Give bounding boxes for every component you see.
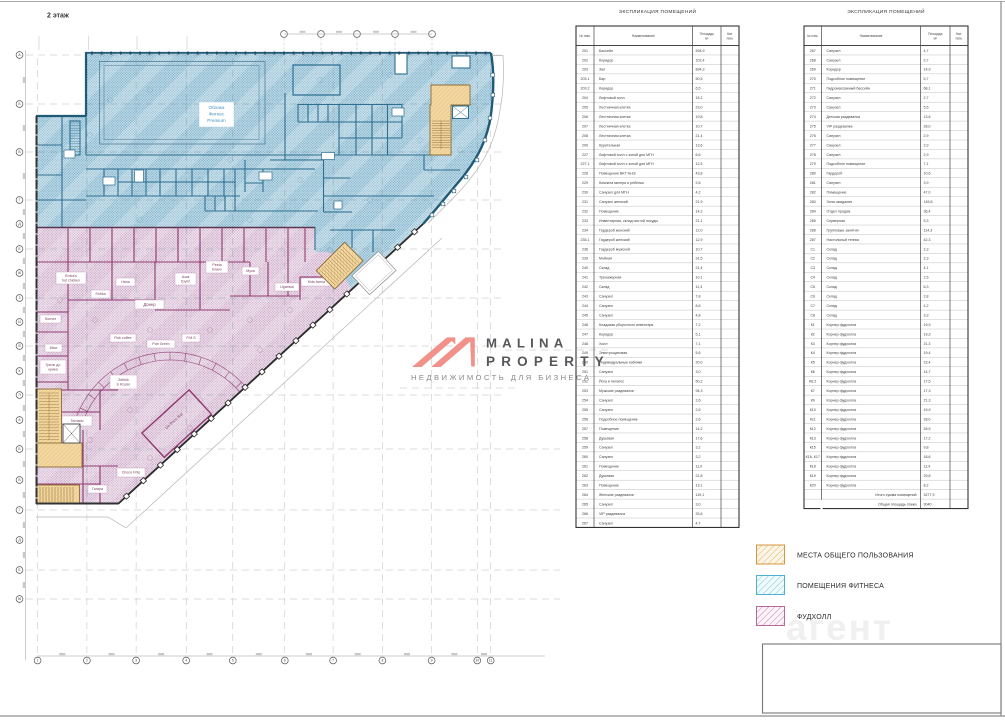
svg-text:3040: 3040 bbox=[924, 502, 932, 506]
svg-text:50,5: 50,5 bbox=[696, 77, 703, 81]
svg-text:К9: К9 bbox=[811, 398, 815, 402]
svg-text:Курительная: Курительная bbox=[599, 143, 620, 147]
svg-text:Корнер фудхолла: Корнер фудхолла bbox=[827, 380, 857, 384]
svg-text:Склад: Склад bbox=[827, 295, 838, 299]
svg-text:К2: К2 bbox=[811, 332, 815, 336]
svg-text:234: 234 bbox=[582, 228, 588, 232]
svg-text:276: 276 bbox=[810, 134, 816, 138]
svg-text:18,6: 18,6 bbox=[924, 455, 931, 459]
svg-text:13,1: 13,1 bbox=[696, 484, 703, 488]
svg-text:К18: К18 bbox=[810, 465, 816, 469]
svg-text:Общая площадь этажа: Общая площадь этажа bbox=[878, 502, 917, 506]
svg-text:№ пом.: № пом. bbox=[807, 34, 818, 38]
svg-text:271: 271 bbox=[810, 87, 816, 91]
svg-text:5: 5 bbox=[232, 659, 234, 663]
svg-text:Санузел: Санузел bbox=[599, 455, 613, 459]
svg-text:Корнер фудхолла: Корнер фудхолла bbox=[827, 427, 857, 431]
svg-text:К6.2: К6.2 bbox=[809, 380, 816, 384]
svg-text:Подсобное помещение: Подсобное помещение bbox=[827, 77, 866, 81]
svg-text:Кат.: Кат. bbox=[727, 32, 733, 36]
svg-text:Санузел: Санузел bbox=[599, 370, 613, 374]
svg-text:3277,9: 3277,9 bbox=[924, 493, 935, 497]
svg-text:Корнер фудхолла: Корнер фудхолла bbox=[827, 436, 857, 440]
svg-text:267: 267 bbox=[582, 521, 588, 525]
svg-text:Облака: Облака bbox=[209, 105, 225, 110]
svg-text:Kids Arena: Kids Arena bbox=[308, 280, 325, 284]
svg-text:Площадь: Площадь bbox=[928, 32, 943, 36]
svg-text:229: 229 bbox=[582, 181, 588, 185]
svg-text:235.1: 235.1 bbox=[581, 238, 590, 242]
svg-text:пом.: пом. bbox=[727, 37, 734, 41]
svg-text:227.1: 227.1 bbox=[581, 162, 590, 166]
svg-text:Лифтовой холл с зоной для МГН: Лифтовой холл с зоной для МГН bbox=[599, 153, 654, 157]
svg-text:5,7: 5,7 bbox=[924, 77, 929, 81]
svg-text:Санузел: Санузел bbox=[827, 153, 841, 157]
svg-text:17,3: 17,3 bbox=[924, 389, 931, 393]
svg-text:Гардероб женский: Гардероб женский bbox=[599, 238, 630, 242]
svg-text:К7: К7 bbox=[811, 389, 815, 393]
svg-text:Корнер фудхолла: Корнер фудхолла bbox=[827, 332, 857, 336]
svg-text:Коридор: Коридор bbox=[827, 68, 841, 72]
svg-text:МЕСТА ОБЩЕГО ПОЛЬЗОВАНИЯ: МЕСТА ОБЩЕГО ПОЛЬЗОВАНИЯ bbox=[797, 553, 914, 560]
svg-text:47,0: 47,0 bbox=[924, 191, 931, 195]
svg-text:202: 202 bbox=[582, 58, 588, 62]
svg-text:282: 282 bbox=[810, 191, 816, 195]
svg-text:Ugarista: Ugarista bbox=[280, 285, 293, 289]
svg-text:21,8: 21,8 bbox=[696, 474, 703, 478]
svg-text:242: 242 bbox=[582, 285, 588, 289]
svg-text:НЕДВИЖИМОСТЬ ДЛЯ БИЗНЕСА: НЕДВИЖИМОСТЬ ДЛЯ БИЗНЕСА bbox=[411, 373, 591, 382]
svg-text:256: 256 bbox=[582, 417, 588, 421]
svg-text:Лестничная клетка: Лестничная клетка bbox=[599, 134, 630, 138]
svg-text:36,4: 36,4 bbox=[924, 209, 931, 213]
svg-text:Помещение: Помещение bbox=[599, 484, 619, 488]
svg-text:К3: К3 bbox=[811, 342, 815, 346]
svg-text:Помещение: Помещение bbox=[599, 209, 619, 213]
svg-text:Комната матери и ребенка: Комната матери и ребенка bbox=[599, 181, 644, 185]
svg-text:Йога и пилатес: Йога и пилатес bbox=[599, 380, 624, 384]
svg-text:Корнер фудхолла: Корнер фудхолла bbox=[827, 465, 857, 469]
svg-text:6,3: 6,3 bbox=[924, 285, 929, 289]
svg-text:2,9: 2,9 bbox=[924, 143, 929, 147]
svg-text:7,8: 7,8 bbox=[696, 295, 701, 299]
svg-text:1: 1 bbox=[37, 659, 39, 663]
svg-text:Корнер фудхолла: Корнер фудхолла bbox=[827, 342, 857, 346]
svg-text:Коридор: Коридор bbox=[599, 87, 613, 91]
svg-text:Холл: Холл bbox=[599, 342, 607, 346]
svg-text:19,3: 19,3 bbox=[924, 332, 931, 336]
svg-text:Санузел: Санузел bbox=[827, 58, 841, 62]
svg-text:2,6: 2,6 bbox=[696, 408, 701, 412]
svg-text:Склад: Склад bbox=[827, 257, 838, 261]
svg-text:Г: Г bbox=[19, 508, 21, 512]
svg-text:Лестничная клетка: Лестничная клетка bbox=[599, 106, 630, 110]
svg-text:278: 278 bbox=[810, 153, 816, 157]
svg-text:Корнер фудхолла: Корнер фудхолла bbox=[827, 446, 857, 450]
svg-text:28,0: 28,0 bbox=[924, 417, 931, 421]
svg-text:К13: К13 bbox=[810, 436, 816, 440]
svg-text:Бар: Бар bbox=[599, 77, 605, 81]
svg-text:260: 260 bbox=[582, 455, 588, 459]
svg-text:14,2: 14,2 bbox=[696, 427, 703, 431]
svg-text:280: 280 bbox=[810, 172, 816, 176]
svg-text:17,5: 17,5 bbox=[924, 380, 931, 384]
svg-text:Л: Л bbox=[18, 393, 20, 397]
svg-text:284: 284 bbox=[810, 209, 816, 213]
svg-text:С8: С8 bbox=[810, 313, 815, 317]
svg-text:С1: С1 bbox=[810, 247, 815, 251]
svg-text:Premium: Premium bbox=[207, 118, 226, 123]
svg-text:Помещение: Помещение bbox=[827, 191, 847, 195]
svg-text:С3: С3 bbox=[810, 266, 815, 270]
svg-text:21,4: 21,4 bbox=[696, 134, 703, 138]
svg-text:8,6: 8,6 bbox=[696, 304, 701, 308]
svg-text:Зал: Зал bbox=[599, 68, 605, 72]
svg-text:Санузел: Санузел bbox=[599, 398, 613, 402]
svg-text:3,2: 3,2 bbox=[696, 446, 701, 450]
svg-text:11,0: 11,0 bbox=[696, 465, 703, 469]
svg-text:277: 277 bbox=[810, 143, 816, 147]
svg-text:13,6: 13,6 bbox=[924, 115, 931, 119]
svg-text:43,8: 43,8 bbox=[696, 172, 703, 176]
svg-text:Санузел: Санузел bbox=[827, 49, 841, 53]
svg-text:11: 11 bbox=[489, 659, 493, 663]
svg-text:286: 286 bbox=[810, 228, 816, 232]
svg-text:6,6: 6,6 bbox=[696, 153, 701, 157]
svg-text:Санузел: Санузел bbox=[827, 106, 841, 110]
svg-text:2,7: 2,7 bbox=[924, 96, 929, 100]
svg-text:243: 243 bbox=[582, 295, 588, 299]
svg-text:К: К bbox=[19, 369, 21, 373]
svg-text:261: 261 bbox=[582, 465, 588, 469]
svg-text:231: 231 bbox=[582, 200, 588, 204]
svg-text:К15: К15 bbox=[810, 446, 816, 450]
svg-text:279: 279 bbox=[810, 162, 816, 166]
svg-text:ПОМЕЩЕНИЯ ФИТНЕСА: ПОМЕЩЕНИЯ ФИТНЕСА bbox=[797, 583, 884, 590]
svg-text:Наименование: Наименование bbox=[632, 34, 655, 38]
svg-text:С7: С7 bbox=[810, 304, 815, 308]
svg-text:10,7: 10,7 bbox=[696, 124, 703, 128]
svg-text:Shirka: Shirka bbox=[95, 292, 105, 296]
svg-text:21,3: 21,3 bbox=[924, 342, 931, 346]
svg-text:Склад: Склад bbox=[827, 313, 838, 317]
svg-text:267: 267 bbox=[810, 49, 816, 53]
svg-text:Групп: Групп bbox=[181, 279, 190, 283]
svg-text:2,8: 2,8 bbox=[924, 295, 929, 299]
svg-text:Mloe: Mloe bbox=[50, 346, 58, 350]
svg-text:283: 283 bbox=[810, 200, 816, 204]
svg-text:33,6: 33,6 bbox=[696, 512, 703, 516]
svg-text:594,9: 594,9 bbox=[696, 49, 705, 53]
svg-text:68,1: 68,1 bbox=[924, 87, 931, 91]
svg-text:204: 204 bbox=[582, 96, 588, 100]
svg-text:Итого сумма помещений: Итого сумма помещений bbox=[875, 493, 916, 497]
svg-text:Санузел: Санузел bbox=[827, 134, 841, 138]
svg-text:пом.: пом. bbox=[956, 37, 963, 41]
svg-text:Склад: Склад bbox=[827, 304, 838, 308]
svg-text:230: 230 bbox=[582, 191, 588, 195]
svg-text:7: 7 bbox=[332, 659, 334, 663]
svg-text:Санузел: Санузел bbox=[599, 521, 613, 525]
svg-text:Коридор: Коридор bbox=[599, 332, 613, 336]
svg-text:145,6: 145,6 bbox=[924, 200, 933, 204]
svg-text:С4: С4 bbox=[810, 276, 815, 280]
svg-text:Гагара: Гагара bbox=[92, 487, 103, 491]
svg-text:246: 246 bbox=[582, 323, 588, 327]
svg-text:239: 239 bbox=[582, 257, 588, 261]
svg-text:Корнер фудхолла: Корнер фудхолла bbox=[827, 361, 857, 365]
svg-text:13,6: 13,6 bbox=[696, 143, 703, 147]
svg-text:236: 236 bbox=[582, 247, 588, 251]
svg-text:Мука: Мука bbox=[246, 269, 254, 273]
svg-text:Гидромассажный бассейн: Гидромассажный бассейн bbox=[827, 87, 870, 91]
svg-text:20,0: 20,0 bbox=[696, 361, 703, 365]
svg-text:К12: К12 bbox=[810, 427, 816, 431]
svg-text:Помещение: Помещение bbox=[599, 427, 619, 431]
svg-text:Rob coffee: Rob coffee bbox=[114, 336, 131, 340]
svg-text:270: 270 bbox=[810, 77, 816, 81]
svg-text:К6: К6 bbox=[811, 370, 815, 374]
svg-text:21,1: 21,1 bbox=[696, 219, 703, 223]
svg-text:205: 205 bbox=[582, 106, 588, 110]
svg-text:Санузел для МГН: Санузел для МГН bbox=[599, 191, 629, 195]
svg-text:Санузел: Санузел bbox=[599, 295, 613, 299]
svg-text:Корнер фудхолла: Корнер фудхолла bbox=[827, 455, 857, 459]
svg-text:31,5: 31,5 bbox=[696, 257, 703, 261]
svg-text:42,3: 42,3 bbox=[924, 238, 931, 242]
svg-text:272: 272 bbox=[810, 96, 816, 100]
svg-text:№ пом.: № пом. bbox=[579, 34, 590, 38]
svg-text:29,8: 29,8 bbox=[924, 474, 931, 478]
svg-text:11,3: 11,3 bbox=[696, 285, 703, 289]
svg-text:207: 207 bbox=[582, 124, 588, 128]
svg-text:С2: С2 bbox=[810, 257, 815, 261]
svg-text:4,2: 4,2 bbox=[924, 304, 929, 308]
svg-text:Склад: Склад bbox=[599, 266, 610, 270]
svg-text:10: 10 bbox=[475, 659, 479, 663]
svg-text:14,9: 14,9 bbox=[924, 68, 931, 72]
svg-text:257: 257 bbox=[582, 427, 588, 431]
svg-text:209: 209 bbox=[582, 143, 588, 147]
svg-text:266: 266 bbox=[582, 512, 588, 516]
svg-text:23,4: 23,4 bbox=[924, 361, 931, 365]
svg-text:Корнер фудхолла: Корнер фудхолла bbox=[827, 370, 857, 374]
svg-text:3,0: 3,0 bbox=[696, 502, 701, 506]
svg-text:7,1: 7,1 bbox=[696, 342, 701, 346]
svg-text:Гардероб мужской: Гардероб мужской bbox=[599, 247, 630, 251]
svg-text:ФУДХОЛЛ: ФУДХОЛЛ bbox=[797, 614, 832, 621]
svg-text:94,3: 94,3 bbox=[696, 389, 703, 393]
svg-text:Мужские раздевалки: Мужские раздевалки bbox=[599, 389, 634, 393]
svg-text:6,5: 6,5 bbox=[696, 87, 701, 91]
svg-text:269: 269 bbox=[810, 68, 816, 72]
svg-text:З: З bbox=[18, 296, 20, 300]
svg-text:Душевая: Душевая bbox=[599, 474, 614, 478]
svg-text:Настольный теннис: Настольный теннис bbox=[827, 238, 860, 242]
svg-text:264: 264 bbox=[582, 493, 588, 497]
svg-text:23,0: 23,0 bbox=[696, 106, 703, 110]
svg-text:Гардероб женский: Гардероб женский bbox=[599, 228, 630, 232]
svg-text:Инвентарная, склад чистой посу: Инвентарная, склад чистой посуды bbox=[599, 219, 658, 223]
svg-text:19,8: 19,8 bbox=[696, 115, 703, 119]
svg-text:Групповые занятия: Групповые занятия bbox=[827, 228, 859, 232]
svg-text:3: 3 bbox=[135, 659, 137, 663]
svg-text:894,3: 894,3 bbox=[696, 68, 705, 72]
svg-text:Санузел: Санузел bbox=[599, 502, 613, 506]
svg-text:Hana: Hana bbox=[121, 280, 130, 284]
svg-text:Корнер фудхолла: Корнер фудхолла bbox=[827, 474, 857, 478]
svg-text:Лифтовой холл: Лифтовой холл bbox=[599, 96, 625, 100]
svg-text:259: 259 bbox=[582, 446, 588, 450]
svg-text:10,1: 10,1 bbox=[696, 276, 703, 280]
svg-text:275: 275 bbox=[810, 124, 816, 128]
svg-text:2,9: 2,9 bbox=[924, 153, 929, 157]
svg-text:3,0: 3,0 bbox=[696, 370, 701, 374]
svg-text:Зона ожидания: Зона ожидания bbox=[827, 200, 853, 204]
svg-text:Bravo: Bravo bbox=[212, 267, 221, 271]
svg-text:206: 206 bbox=[582, 115, 588, 119]
svg-text:Санузел: Санузел bbox=[827, 143, 841, 147]
svg-text:10,6: 10,6 bbox=[924, 172, 931, 176]
svg-text:Фитнес: Фитнес bbox=[209, 112, 225, 117]
svg-text:hot chicken: hot chicken bbox=[62, 278, 80, 282]
svg-text:233: 233 bbox=[582, 219, 588, 223]
svg-text:Душевая: Душевая bbox=[599, 436, 614, 440]
svg-text:Гардероб: Гардероб bbox=[827, 172, 843, 176]
svg-text:Санузел: Санузел bbox=[827, 96, 841, 100]
svg-text:Корнер фудхолла: Корнер фудхолла bbox=[827, 398, 857, 402]
svg-text:К20: К20 bbox=[810, 484, 816, 488]
svg-text:Санузел: Санузел bbox=[599, 446, 613, 450]
svg-text:Корнер фудхолла: Корнер фудхолла bbox=[827, 323, 857, 327]
svg-text:4,1: 4,1 bbox=[924, 266, 929, 270]
svg-text:Кладовая уборочного инвентаря: Кладовая уборочного инвентаря bbox=[599, 323, 653, 327]
svg-text:9,8: 9,8 bbox=[924, 446, 929, 450]
svg-text:Санузел: Санузел bbox=[599, 313, 613, 317]
svg-text:102,4: 102,4 bbox=[696, 58, 705, 62]
svg-text:Корнер фудхолла: Корнер фудхолла bbox=[827, 408, 857, 412]
svg-text:10,7: 10,7 bbox=[696, 247, 703, 251]
svg-text:255: 255 bbox=[582, 408, 588, 412]
svg-text:245: 245 bbox=[582, 313, 588, 317]
svg-text:203: 203 bbox=[582, 68, 588, 72]
svg-text:Санузел: Санузел bbox=[599, 304, 613, 308]
svg-text:8,2: 8,2 bbox=[924, 484, 929, 488]
svg-text:4,2: 4,2 bbox=[696, 191, 701, 195]
svg-text:114,3: 114,3 bbox=[924, 228, 933, 232]
svg-text:Choco Frite: Choco Frite bbox=[122, 471, 141, 475]
svg-text:287: 287 bbox=[810, 238, 816, 242]
svg-text:21,9: 21,9 bbox=[696, 200, 703, 204]
svg-text:5,5: 5,5 bbox=[924, 106, 929, 110]
svg-text:VIP раздевалка: VIP раздевалка bbox=[599, 512, 625, 516]
svg-text:11,9: 11,9 bbox=[924, 465, 931, 469]
svg-text:Склад: Склад bbox=[827, 247, 838, 251]
svg-text:Серверная: Серверная bbox=[827, 219, 845, 223]
svg-text:Женские раздевалки: Женские раздевалки bbox=[599, 493, 634, 497]
svg-text:6: 6 bbox=[284, 659, 286, 663]
svg-text:К16, К17: К16, К17 bbox=[806, 455, 820, 459]
svg-text:Кат.: Кат. bbox=[956, 32, 962, 36]
svg-text:28,5: 28,5 bbox=[924, 427, 931, 431]
svg-text:17,6: 17,6 bbox=[696, 436, 703, 440]
svg-text:119,1: 119,1 bbox=[696, 493, 705, 497]
svg-text:262: 262 bbox=[582, 474, 588, 478]
svg-text:К1: К1 bbox=[811, 323, 815, 327]
svg-text:247: 247 bbox=[582, 332, 588, 336]
svg-text:7,1: 7,1 bbox=[924, 162, 929, 166]
svg-text:Корнер фудхолла: Корнер фудхолла bbox=[827, 484, 857, 488]
svg-text:50,2: 50,2 bbox=[696, 380, 703, 384]
svg-text:203.2: 203.2 bbox=[581, 87, 590, 91]
svg-text:С6: С6 bbox=[810, 295, 815, 299]
svg-text:265: 265 bbox=[582, 502, 588, 506]
svg-text:Подсобное помещение: Подсобное помещение bbox=[599, 417, 638, 421]
svg-text:Отдел продаж: Отдел продаж bbox=[827, 209, 851, 213]
svg-text:19,9: 19,9 bbox=[924, 408, 931, 412]
svg-text:Санузел женский: Санузел женский bbox=[599, 200, 628, 204]
svg-text:Тренажерная: Тренажерная bbox=[599, 276, 621, 280]
svg-text:12,5: 12,5 bbox=[696, 162, 703, 166]
svg-text:4: 4 bbox=[185, 659, 187, 663]
svg-text:Мойная: Мойная bbox=[599, 257, 612, 261]
svg-text:248: 248 bbox=[582, 342, 588, 346]
svg-text:4,8: 4,8 bbox=[696, 313, 701, 317]
svg-text:Подсобное помещение: Подсобное помещение bbox=[827, 162, 866, 166]
svg-text:208: 208 bbox=[582, 134, 588, 138]
svg-text:Корнер фудхолла: Корнер фудхолла bbox=[827, 351, 857, 355]
svg-text:240: 240 bbox=[582, 266, 588, 270]
svg-text:285: 285 bbox=[810, 219, 816, 223]
svg-text:2,6: 2,6 bbox=[696, 398, 701, 402]
svg-text:21,4: 21,4 bbox=[696, 266, 703, 270]
svg-text:268: 268 bbox=[810, 58, 816, 62]
svg-text:Санузел: Санузел bbox=[599, 408, 613, 412]
svg-text:Донер: Донер bbox=[143, 302, 156, 307]
svg-text:201: 201 bbox=[582, 49, 588, 53]
svg-text:19,9: 19,9 bbox=[924, 323, 931, 327]
svg-text:2,6: 2,6 bbox=[696, 417, 701, 421]
svg-text:С5: С5 bbox=[810, 285, 815, 289]
svg-text:244: 244 bbox=[582, 304, 588, 308]
svg-text:14,7: 14,7 bbox=[924, 370, 931, 374]
svg-text:Tornado: Tornado bbox=[71, 419, 84, 423]
svg-text:274: 274 bbox=[810, 115, 816, 119]
svg-text:227: 227 bbox=[582, 153, 588, 157]
svg-text:7,2: 7,2 bbox=[696, 323, 701, 327]
svg-text:15,2: 15,2 bbox=[696, 96, 703, 100]
svg-text:MALINA: MALINA bbox=[486, 336, 568, 351]
svg-text:5,1: 5,1 bbox=[696, 332, 701, 336]
svg-text:Г: Г bbox=[19, 198, 21, 202]
svg-text:232: 232 bbox=[582, 209, 588, 213]
svg-text:5,6: 5,6 bbox=[696, 351, 701, 355]
svg-text:8: 8 bbox=[381, 659, 383, 663]
svg-text:К4: К4 bbox=[811, 351, 815, 355]
svg-text:Лифтовой холл с зоной для МГН: Лифтовой холл с зоной для МГН bbox=[599, 162, 654, 166]
svg-text:Склад: Склад bbox=[827, 285, 838, 289]
svg-text:19,4: 19,4 bbox=[924, 351, 931, 355]
svg-text:4,7: 4,7 bbox=[924, 49, 929, 53]
svg-text:3,3: 3,3 bbox=[924, 313, 929, 317]
svg-text:PROPERTY: PROPERTY bbox=[486, 354, 610, 369]
svg-text:Лестничная клетка: Лестничная клетка bbox=[599, 124, 630, 128]
svg-text:VIP раздевалка: VIP раздевалка bbox=[827, 124, 853, 128]
svg-text:Коридор: Коридор bbox=[599, 58, 613, 62]
svg-text:2 этаж: 2 этаж bbox=[47, 13, 70, 20]
svg-text:К10: К10 bbox=[810, 408, 816, 412]
svg-text:К19: К19 bbox=[810, 474, 816, 478]
